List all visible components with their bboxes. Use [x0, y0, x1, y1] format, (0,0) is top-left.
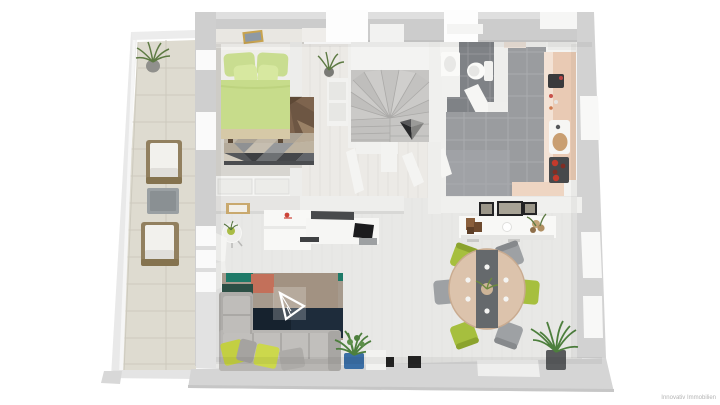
svg-text:Innovativ Immobilien: Innovativ Immobilien	[661, 395, 716, 401]
